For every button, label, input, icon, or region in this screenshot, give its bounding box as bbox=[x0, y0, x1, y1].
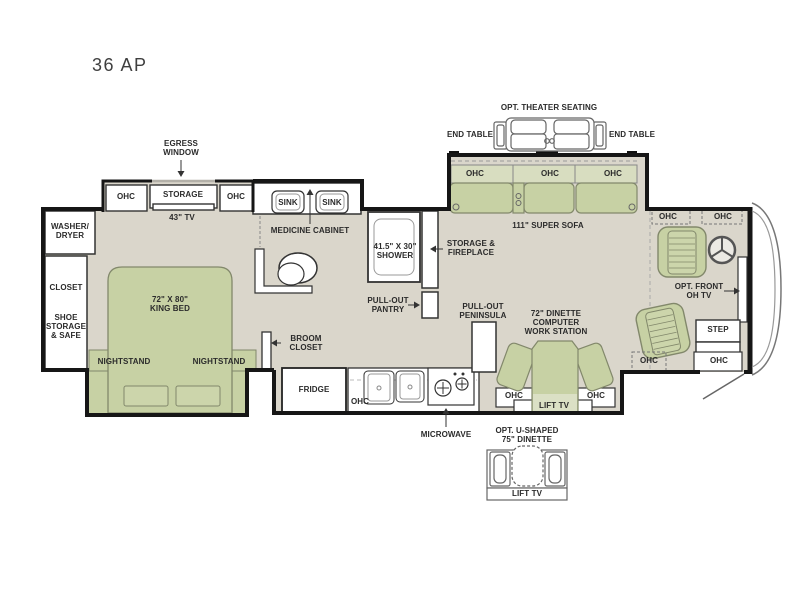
pullout-peninsula-shape bbox=[472, 322, 496, 372]
front-cap-outline bbox=[752, 203, 781, 375]
tv-43-shape bbox=[153, 204, 214, 210]
end-table-left-shape bbox=[494, 122, 507, 149]
closet-shape bbox=[45, 256, 87, 371]
fridge-shape bbox=[282, 368, 346, 412]
driver-seat bbox=[658, 227, 706, 277]
front-lower-ohc-right-shape bbox=[694, 352, 742, 371]
end-table-right-shape bbox=[593, 122, 606, 149]
theater-seating-sketch bbox=[494, 118, 606, 151]
step-shape bbox=[696, 320, 740, 342]
floorplan-model-title: 36 AP bbox=[92, 55, 148, 76]
pullout-pantry-shape bbox=[422, 292, 438, 318]
steering-wheel-icon bbox=[709, 237, 735, 263]
front-oh-tv-shape bbox=[738, 257, 747, 322]
super-sofa-shape bbox=[450, 183, 637, 213]
entry-door-swing bbox=[703, 374, 744, 399]
stove-icon bbox=[428, 368, 474, 405]
broom-closet-shape bbox=[262, 332, 271, 371]
pillow-left bbox=[124, 386, 168, 406]
sofa-ohc-band bbox=[451, 165, 637, 183]
floorplan-page: 36 AP EGRESS WINDOW OHC STORAGE OHC 43" … bbox=[0, 0, 800, 600]
pillow-right bbox=[176, 386, 220, 406]
sink-left-shape bbox=[272, 191, 304, 213]
kitchen-sink-shapes bbox=[364, 371, 424, 404]
u-dinette-sketch bbox=[487, 446, 567, 500]
sink-right-shape bbox=[316, 191, 348, 213]
washer-dryer-shape bbox=[45, 211, 95, 254]
bedroom-slide-cabinets bbox=[106, 185, 253, 211]
shower-shape bbox=[368, 212, 420, 282]
floorplan-graphic bbox=[0, 0, 800, 600]
u-dinette-lift-tv-shape bbox=[487, 488, 567, 500]
windshield-line bbox=[752, 211, 775, 367]
